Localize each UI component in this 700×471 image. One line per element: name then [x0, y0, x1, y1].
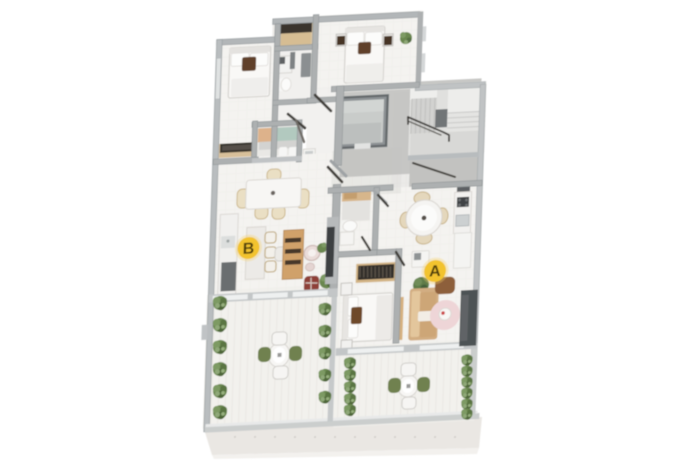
- svg-text:B: B: [242, 240, 254, 258]
- svg-text:A: A: [429, 263, 442, 281]
